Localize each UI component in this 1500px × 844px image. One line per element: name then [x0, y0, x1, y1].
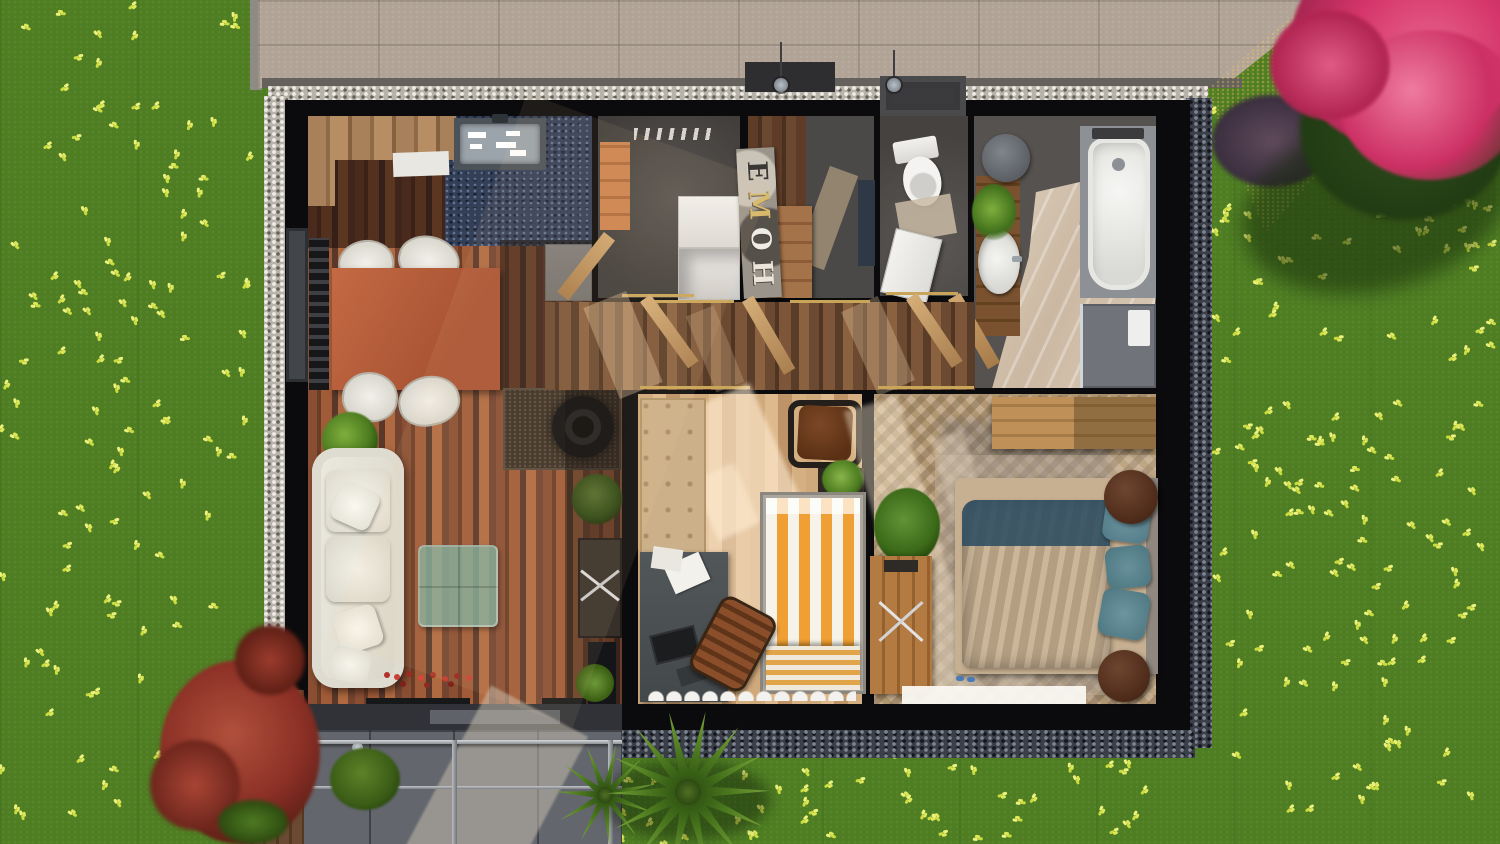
grass-flower: [1467, 347, 1471, 352]
grass-flower: [1250, 463, 1255, 466]
grass-flower: [243, 330, 248, 336]
potted-plant: [972, 184, 1016, 240]
grass-flower: [32, 302, 37, 305]
grass-flower: [6, 382, 10, 388]
grass-flower: [827, 784, 833, 789]
grass-flower: [1333, 434, 1336, 439]
grass-flower: [1298, 482, 1304, 486]
grass-flower: [131, 5, 136, 10]
grass-flower: [146, 491, 151, 496]
grass-flower: [50, 607, 54, 613]
grass-flower: [183, 481, 186, 486]
bed1-pillow: [766, 498, 860, 514]
grass-flower: [13, 432, 19, 437]
undergrowth-green: [218, 800, 288, 844]
grass-flower: [152, 280, 156, 286]
grass-flower: [1365, 517, 1368, 522]
grass-flower: [85, 206, 89, 212]
grass-flower: [23, 812, 26, 817]
grass-flower: [57, 667, 60, 672]
grass-flower: [60, 510, 66, 514]
desk-tray: [884, 560, 918, 572]
grass-flower: [1113, 831, 1119, 835]
grass-flower: [1421, 659, 1427, 664]
grass-flower: [165, 189, 169, 195]
grass-flower: [17, 806, 20, 811]
grass-flower: [1337, 339, 1342, 342]
grass-flower: [935, 813, 940, 818]
grass-flower: [1378, 412, 1383, 417]
grass-flower: [1127, 759, 1131, 765]
grass-flower: [233, 22, 239, 26]
grass-flower: [157, 551, 163, 556]
grass-flower: [1488, 341, 1494, 346]
shower-towel: [1128, 310, 1150, 346]
grass-flower: [1109, 764, 1115, 769]
grass-flower: [1429, 534, 1434, 540]
bed2-pillow: [1104, 544, 1152, 590]
palm-core: [675, 779, 701, 805]
grass-flower: [222, 20, 227, 23]
grass-flower: [1214, 227, 1219, 233]
grass-flower: [1362, 796, 1366, 801]
grass-flower: [104, 782, 108, 787]
grass-flower: [1222, 551, 1227, 556]
grass-flower: [812, 812, 817, 816]
slippers-icon: [956, 676, 964, 681]
grass-flower: [205, 435, 211, 439]
grass-flower: [78, 503, 84, 508]
grass-flower: [110, 615, 115, 618]
grass-flower: [1455, 423, 1459, 429]
shower-glass-edge: [1080, 304, 1083, 388]
grass-flower: [1215, 313, 1220, 318]
grass-flower: [1385, 717, 1389, 722]
grass-flower: [1286, 680, 1290, 686]
washbasin: [978, 230, 1020, 294]
grass-flower: [1449, 438, 1454, 441]
grass-flower: [1461, 616, 1466, 619]
grass-flower: [225, 369, 230, 374]
grass-flower: [1491, 243, 1497, 247]
grass-flower: [1001, 795, 1006, 799]
bedroom1-curtain: [648, 684, 856, 701]
grass-flower: [1287, 481, 1292, 486]
grass-flower: [1278, 466, 1283, 472]
grass-flower: [159, 310, 164, 315]
grass-flower: [1388, 737, 1394, 741]
grass-flower: [1327, 509, 1333, 514]
grass-flower: [39, 648, 44, 653]
grass-flower: [1398, 739, 1403, 745]
grass-flower: [1363, 636, 1368, 641]
desk: [870, 556, 932, 694]
grass-flower: [97, 30, 102, 35]
grass-flower: [779, 786, 783, 791]
grass-flower: [58, 10, 63, 13]
grass-flower: [1126, 820, 1131, 825]
red-flower-box: [384, 672, 390, 678]
grass-flower: [908, 769, 912, 775]
grass-flower: [1471, 791, 1475, 797]
potted-plant-large: [874, 488, 940, 564]
grass-flower: [88, 438, 94, 443]
palm-plant: [608, 712, 768, 844]
grass-flower: [1390, 661, 1396, 666]
grass-flower: [62, 153, 67, 159]
kitchen-worksheet: [393, 151, 450, 177]
grass-flower: [931, 817, 937, 821]
grass-flower: [1290, 808, 1295, 813]
red-tree-blob: [235, 625, 305, 695]
grass-flower: [89, 695, 94, 698]
grass-flower: [116, 360, 121, 364]
grass-flower: [1350, 562, 1355, 567]
grass-flower: [1446, 751, 1451, 757]
grass-flower: [1334, 776, 1340, 781]
bed1-mattress-striped: [766, 498, 860, 646]
grass-flower: [95, 691, 101, 696]
door-threshold: [878, 386, 974, 389]
grass-flower: [112, 766, 118, 770]
kitchen-counter-left: [308, 116, 335, 206]
grass-flower: [1272, 312, 1277, 317]
grass-flower: [1122, 772, 1127, 775]
grass-flower: [14, 241, 19, 246]
grass-flower: [1239, 660, 1242, 665]
grass-flower: [1229, 644, 1234, 648]
grass-flower: [211, 603, 216, 607]
grass-flower: [1366, 609, 1372, 613]
grass-flower: [235, 13, 238, 18]
grass-flower: [1440, 782, 1445, 785]
grass-flower: [806, 800, 810, 806]
grass-flower: [1267, 480, 1271, 485]
grass-flower: [1015, 815, 1020, 818]
grass-flower: [1135, 813, 1139, 819]
grass-flower: [1255, 433, 1260, 438]
garden-scene: E M O H: [0, 0, 1500, 844]
grass-flower: [184, 212, 188, 218]
grass-flower: [49, 712, 55, 717]
grass-flower: [173, 595, 178, 601]
grass-flower: [100, 358, 105, 363]
grass-flower: [96, 407, 100, 413]
grass-flower: [1317, 481, 1322, 485]
grass-flower: [77, 280, 82, 286]
grass-flower: [1456, 581, 1460, 587]
bed2-pillow: [1096, 586, 1152, 642]
grass-flower: [54, 275, 59, 280]
grass-flower: [1223, 356, 1229, 360]
grass-flower: [1333, 569, 1338, 574]
bedroom2-window-light: [902, 686, 1086, 704]
grass-flower: [189, 122, 193, 127]
grass-flower: [112, 121, 118, 125]
grass-flower: [1471, 487, 1476, 492]
grass-flower: [135, 106, 141, 110]
grass-flower: [117, 385, 120, 390]
grass-flower: [1309, 435, 1314, 438]
door-threshold: [790, 300, 870, 303]
grass-flower: [828, 832, 834, 836]
grass-flower: [99, 61, 103, 67]
grass-flower: [1358, 622, 1361, 627]
grass-flower: [1476, 400, 1481, 404]
grass-flower: [859, 781, 864, 784]
grass-flower: [1410, 521, 1415, 526]
grass-flower: [1102, 809, 1106, 815]
grass-flower: [1488, 318, 1494, 322]
grass-flower: [1286, 401, 1291, 406]
grass-flower: [24, 23, 30, 27]
grass-flower: [44, 663, 50, 668]
grass-flower: [1471, 269, 1476, 272]
living-window-left: [286, 228, 308, 382]
grass-flower: [126, 275, 131, 280]
grass-flower: [155, 105, 160, 110]
grass-flower: [171, 163, 176, 166]
grass-flower: [1311, 505, 1315, 511]
grass-flower: [108, 258, 114, 262]
grass-flower: [113, 268, 119, 273]
grass-flower: [151, 302, 157, 306]
grass-flower: [171, 285, 174, 290]
grass-flower: [1243, 712, 1248, 717]
grass-flower: [1275, 570, 1280, 574]
grass-flower: [214, 119, 217, 124]
grass-flower: [165, 420, 170, 425]
grass-flower: [1301, 679, 1307, 684]
grass-flower: [116, 467, 120, 473]
grass-flower: [1071, 765, 1074, 770]
grass-flower: [208, 513, 211, 518]
porch-lamp: [774, 78, 788, 92]
railing-post: [452, 740, 457, 844]
grass-flower: [112, 462, 117, 468]
grass-flower: [75, 137, 80, 140]
grass-flower: [974, 767, 977, 772]
grass-flower: [1258, 649, 1264, 653]
grass-flower: [1268, 410, 1273, 415]
grass-flower: [1353, 484, 1359, 489]
grass-flower: [156, 403, 162, 408]
grass-flower: [1470, 608, 1475, 612]
grass-flower: [22, 362, 27, 365]
grass-flower: [805, 768, 810, 774]
grass-flower: [47, 145, 53, 150]
grass-flower: [1390, 332, 1396, 337]
grass-flower: [1408, 727, 1411, 732]
grass-flower: [219, 449, 222, 454]
grass-flower: [1356, 763, 1361, 768]
grass-flower: [1479, 330, 1485, 334]
grass-flower: [203, 219, 208, 224]
grass-flower: [0, 428, 5, 433]
grass-flower: [1296, 509, 1301, 512]
grass-flower: [1323, 331, 1328, 336]
grass-flower: [115, 604, 120, 607]
grass-flower: [1335, 416, 1340, 421]
basin-tap-icon: [1012, 256, 1022, 262]
grass-flower: [1144, 788, 1149, 793]
grass-flower: [1214, 452, 1220, 456]
grass-flower: [229, 453, 234, 456]
porch-lamp: [887, 78, 901, 92]
sink-faucet-icon: [492, 114, 508, 123]
grass-flower: [245, 418, 248, 423]
grass-flower: [107, 597, 112, 602]
grass-flower: [904, 791, 910, 796]
tub-drain-icon: [1112, 158, 1125, 171]
grass-flower: [923, 813, 927, 819]
grass-flower: [1394, 475, 1400, 479]
grass-flower: [134, 317, 138, 323]
grass-flower: [1370, 446, 1376, 451]
green-bush: [330, 748, 400, 810]
grass-flower: [1246, 427, 1251, 430]
grass-flower: [1338, 561, 1344, 565]
grass-flower: [1309, 808, 1315, 813]
side-table: [1098, 650, 1150, 702]
grass-flower: [1255, 531, 1259, 536]
grass-flower: [1466, 532, 1472, 537]
grass-flower: [201, 174, 206, 177]
grass-flower: [200, 190, 203, 195]
grass-flower: [804, 819, 809, 824]
grass-flower: [1249, 611, 1253, 616]
grass-flower: [64, 86, 70, 91]
grass-flower: [127, 426, 133, 430]
grass-flower: [1435, 318, 1440, 324]
grass-flower: [77, 58, 82, 62]
grass-flower: [1388, 743, 1393, 749]
grass-flower: [1289, 512, 1295, 517]
grass-flower: [1344, 500, 1349, 505]
grass-flower: [60, 350, 65, 355]
grass-flower: [950, 767, 955, 771]
grass-flower: [121, 447, 125, 453]
grass-flower: [1360, 537, 1365, 541]
grass-flower: [113, 521, 118, 524]
grass-flower: [175, 621, 181, 625]
grass-flower: [1439, 472, 1444, 477]
grass-flower: [1375, 587, 1381, 591]
grass-flower: [804, 788, 809, 793]
grass-flower: [17, 400, 20, 405]
grass-flower: [1344, 662, 1349, 665]
grass-flower: [242, 368, 245, 373]
wardrobe-shade: [1074, 397, 1156, 449]
grass-flower: [32, 292, 37, 297]
grass-flower: [1386, 568, 1392, 572]
grass-flower: [141, 675, 144, 680]
grass-flower: [184, 234, 187, 239]
grass-flower: [137, 142, 140, 147]
grass-flower: [66, 307, 72, 312]
radiator: [309, 238, 329, 390]
grass-flower: [1018, 798, 1023, 801]
grass-flower: [1236, 330, 1241, 335]
grass-flower: [71, 809, 77, 814]
grass-flower: [66, 568, 72, 573]
pink-tree-bloom: [1270, 10, 1390, 120]
grass-flower: [1405, 603, 1410, 609]
grass-flower: [1380, 659, 1385, 663]
grass-flower: [134, 33, 138, 39]
grass-flower: [1452, 357, 1458, 362]
grass-flower: [66, 545, 71, 549]
grass-flower: [182, 335, 187, 338]
grass-flower: [1294, 486, 1299, 491]
grass-flower: [137, 543, 141, 548]
porch-mat: [745, 62, 835, 92]
grass-flower: [2, 766, 5, 771]
side-table: [1104, 470, 1158, 524]
grass-flower: [1289, 782, 1293, 787]
grass-flower: [176, 151, 179, 156]
bath-stool: [982, 134, 1030, 182]
grass-flower: [1352, 466, 1357, 469]
grass-flower: [1275, 304, 1280, 310]
grass-flower: [86, 306, 91, 311]
grass-flower: [98, 333, 102, 338]
grass-flower: [942, 833, 948, 837]
grass-flower: [1326, 634, 1331, 640]
grass-flower: [1396, 399, 1402, 404]
grass-flower: [117, 799, 122, 805]
grass-flower: [1368, 783, 1374, 787]
desk-paper: [651, 546, 684, 572]
grass-flower: [27, 660, 30, 665]
grass-flower: [1306, 645, 1312, 650]
grass-flower: [1227, 207, 1232, 212]
grass-flower: [80, 288, 86, 292]
grass-flower: [1394, 637, 1398, 643]
grass-flower: [1455, 568, 1459, 574]
grass-flower: [1289, 560, 1294, 565]
grass-flower: [1445, 517, 1451, 522]
grass-flower: [143, 628, 147, 634]
grass-flower: [1436, 546, 1441, 549]
grass-flower: [3, 572, 7, 578]
grass-flower: [1216, 574, 1221, 579]
grass-flower: [79, 758, 84, 763]
grass-flower: [108, 238, 112, 243]
grass-flower: [1375, 781, 1380, 787]
grass-flower: [122, 298, 127, 303]
grass-flower: [123, 376, 128, 380]
hall-slate-panel: [858, 180, 875, 266]
grass-flower: [1238, 443, 1244, 447]
grass-flower: [1365, 438, 1368, 443]
grass-flower: [1385, 679, 1388, 684]
grass-flower: [1335, 684, 1338, 689]
grass-flower: [975, 835, 980, 838]
grass-flower: [162, 416, 167, 419]
tub-faucet-icon: [1092, 128, 1144, 139]
grass-flower: [61, 298, 66, 303]
rug-letter: H: [744, 253, 780, 293]
door-threshold: [886, 292, 958, 295]
grass-flower: [88, 523, 92, 529]
grass-flower: [167, 174, 171, 180]
bed2-blanket-fold: [962, 500, 1110, 546]
grass-flower: [220, 275, 226, 279]
grass-flower: [1076, 775, 1080, 781]
grass-flower: [1450, 640, 1456, 644]
grass-flower: [1387, 454, 1392, 458]
